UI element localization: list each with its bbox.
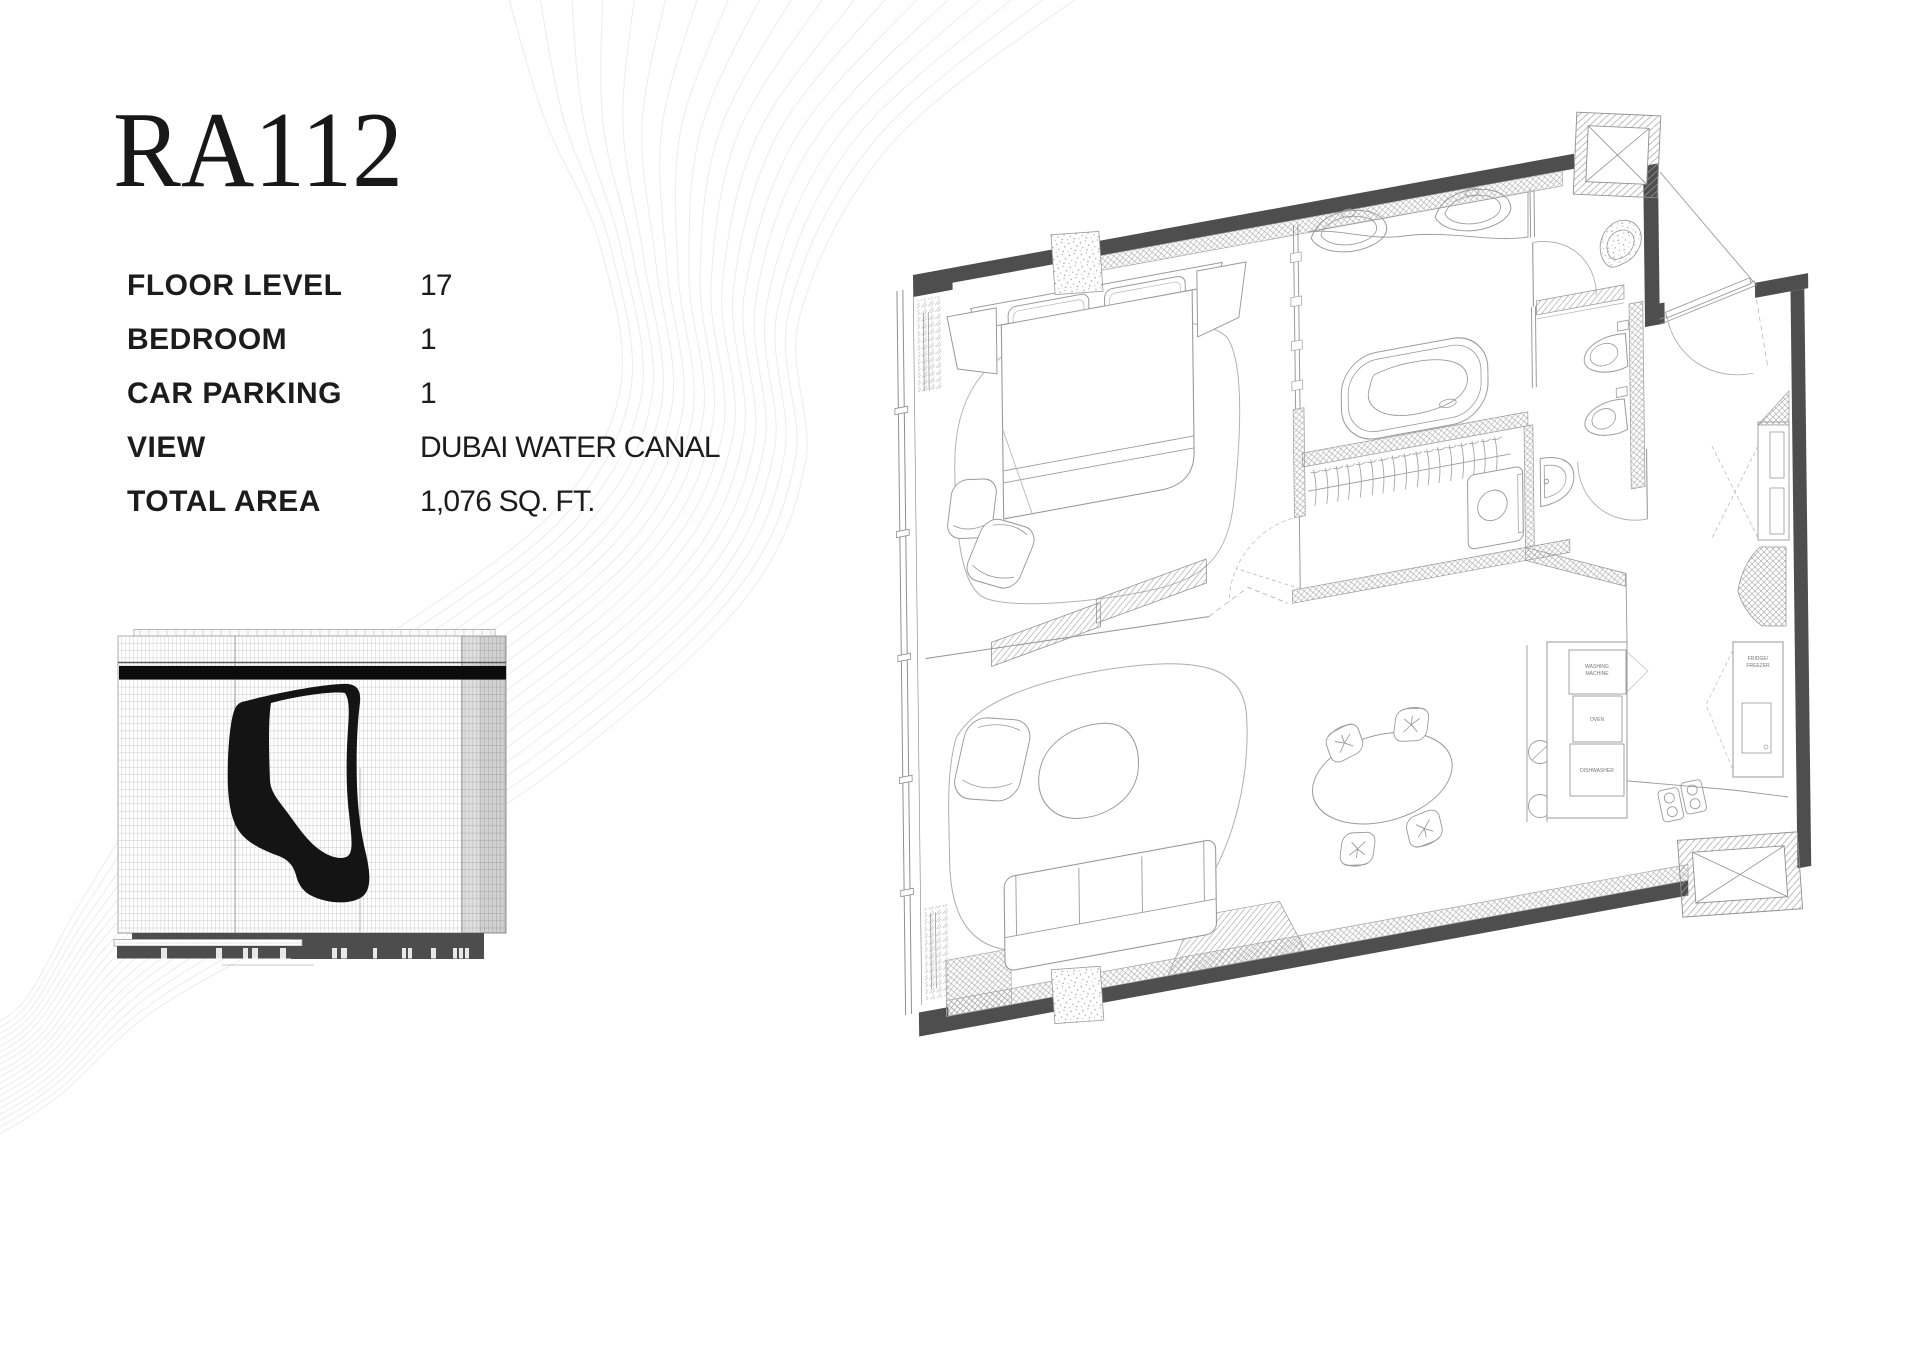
svg-text:VIEW: VIEW [127,431,206,464]
svg-text:WASHING: WASHING [1585,664,1609,670]
svg-text:BEDROOM: BEDROOM [127,323,287,356]
svg-text:17: 17 [420,269,452,302]
svg-text:TOTAL AREA: TOTAL AREA [127,485,321,518]
svg-text:1,076 SQ. FT.: 1,076 SQ. FT. [420,485,595,518]
svg-text:DUBAI WATER CANAL: DUBAI WATER CANAL [420,431,720,464]
svg-text:CAR PARKING: CAR PARKING [127,377,342,410]
svg-text:FRIDGE/: FRIDGE/ [1748,656,1769,662]
svg-text:FLOOR LEVEL: FLOOR LEVEL [127,269,343,302]
svg-text:FREEZER: FREEZER [1746,663,1770,669]
svg-text:DISHWASHER: DISHWASHER [1580,768,1614,774]
svg-text:OVEN: OVEN [1590,717,1605,723]
svg-text:MACHINE: MACHINE [1585,671,1609,677]
svg-text:1: 1 [420,323,436,356]
svg-text:RA112: RA112 [113,91,403,210]
svg-text:1: 1 [420,377,436,410]
